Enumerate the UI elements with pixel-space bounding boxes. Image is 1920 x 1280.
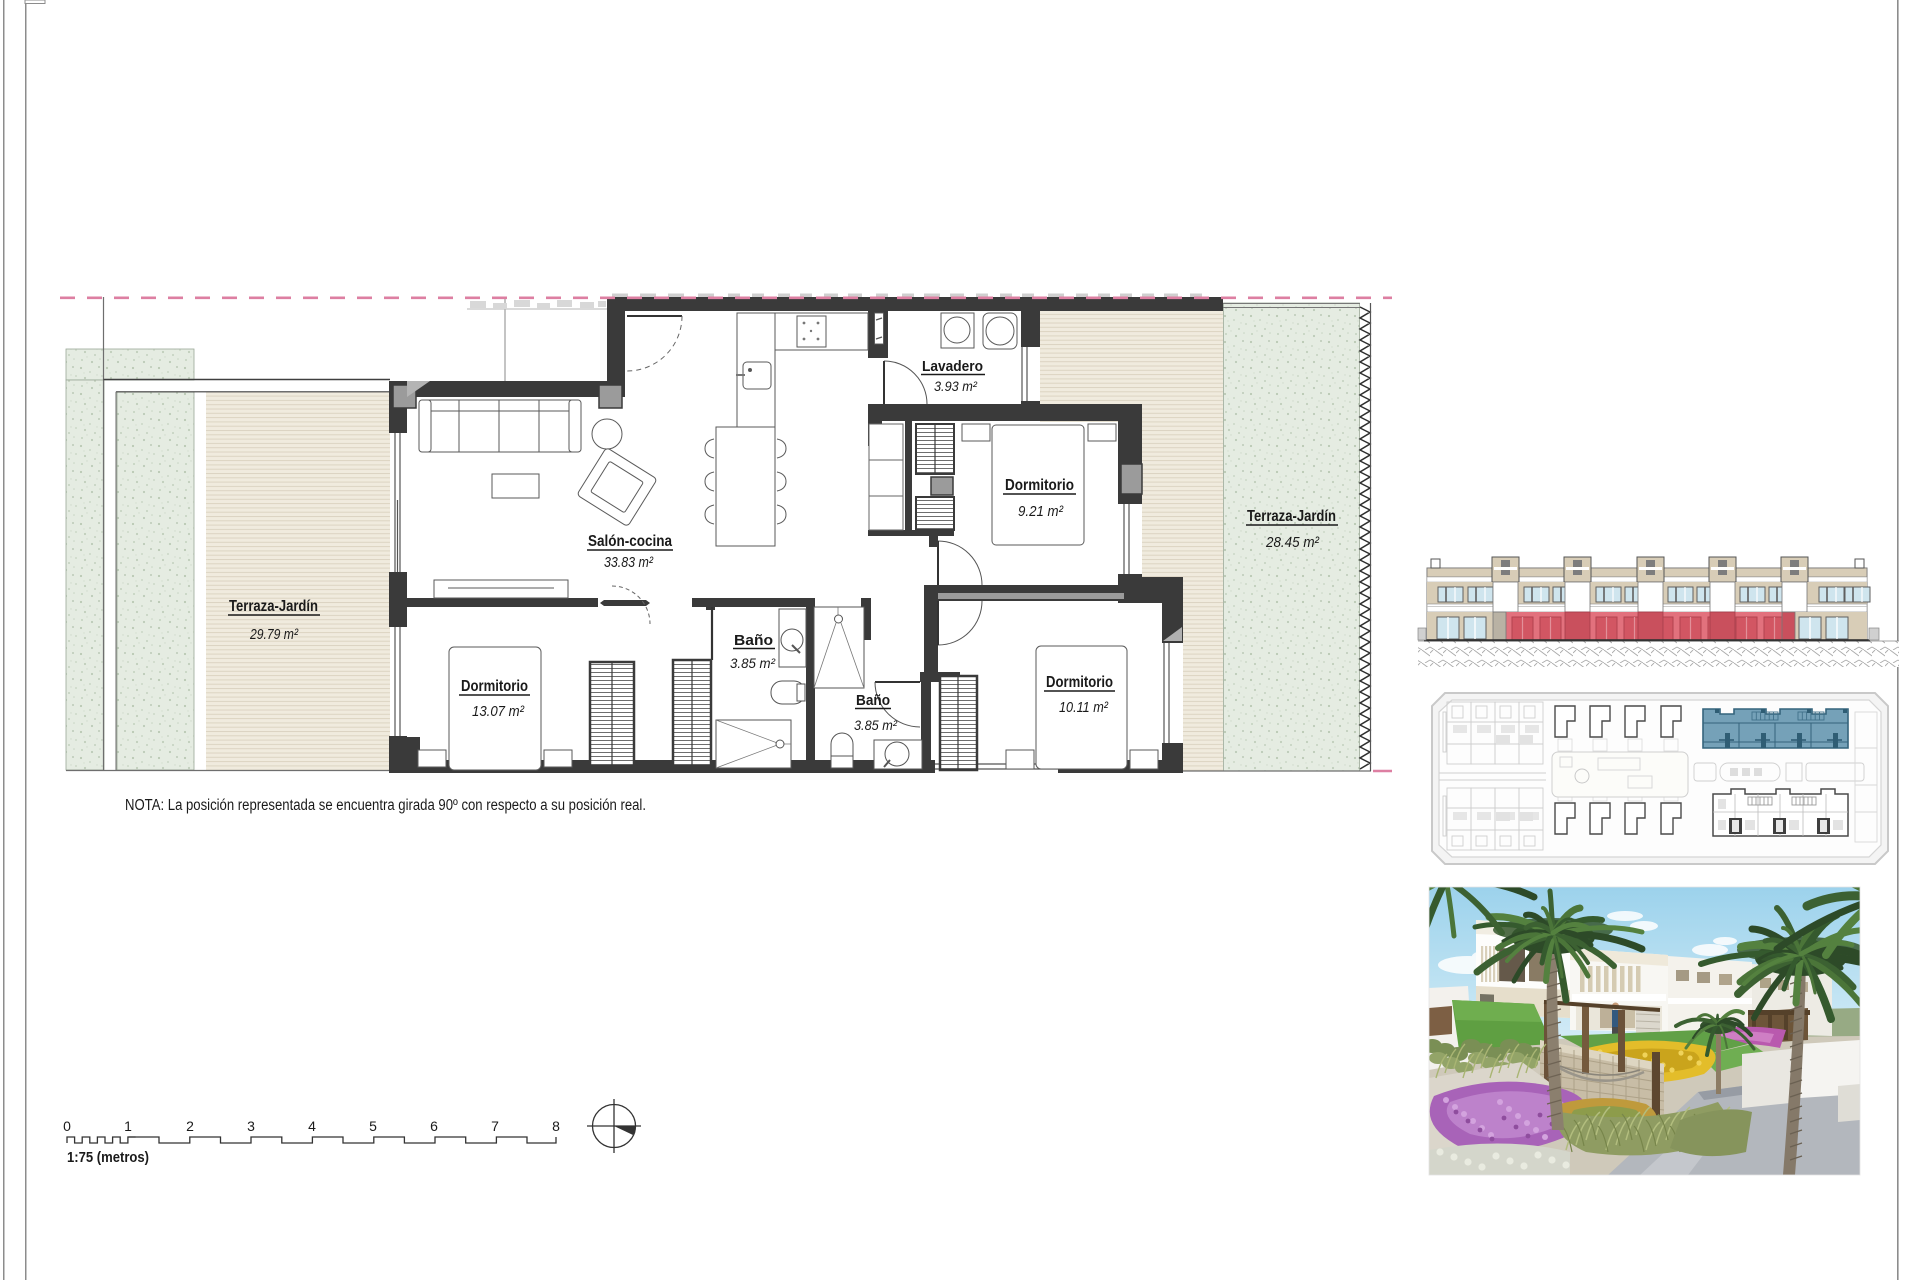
svg-text:8: 8 bbox=[552, 1118, 560, 1134]
svg-text:33.83 m²: 33.83 m² bbox=[604, 554, 654, 571]
svg-text:Dormitorio: Dormitorio bbox=[461, 678, 528, 695]
svg-text:3.85 m²: 3.85 m² bbox=[730, 655, 776, 671]
svg-text:0: 0 bbox=[63, 1118, 71, 1134]
svg-text:5: 5 bbox=[369, 1118, 377, 1134]
svg-text:Terraza-Jardín: Terraza-Jardín bbox=[229, 598, 318, 615]
svg-text:10.11 m²: 10.11 m² bbox=[1059, 699, 1109, 716]
svg-text:13.07 m²: 13.07 m² bbox=[472, 703, 525, 720]
svg-text:Baño: Baño bbox=[734, 632, 773, 649]
svg-text:6: 6 bbox=[430, 1118, 438, 1134]
svg-text:9.21 m²: 9.21 m² bbox=[1018, 503, 1064, 520]
svg-text:Lavadero: Lavadero bbox=[922, 358, 983, 375]
svg-text:NOTA: La posición representada: NOTA: La posición representada se encuen… bbox=[125, 797, 646, 814]
svg-text:Terraza-Jardín: Terraza-Jardín bbox=[1247, 508, 1336, 525]
svg-text:29.79 m²: 29.79 m² bbox=[249, 626, 299, 643]
svg-text:4: 4 bbox=[308, 1118, 316, 1134]
svg-text:1: 1 bbox=[124, 1118, 132, 1134]
svg-text:1:75 (metros): 1:75 (metros) bbox=[67, 1149, 149, 1166]
svg-text:Baño: Baño bbox=[856, 692, 890, 709]
svg-text:Dormitorio: Dormitorio bbox=[1046, 674, 1113, 691]
svg-text:2: 2 bbox=[186, 1118, 194, 1134]
svg-text:Dormitorio: Dormitorio bbox=[1005, 477, 1074, 494]
svg-text:7: 7 bbox=[491, 1118, 499, 1134]
svg-text:Salón-cocina: Salón-cocina bbox=[588, 533, 672, 550]
svg-text:3.93 m²: 3.93 m² bbox=[934, 378, 978, 394]
svg-text:3: 3 bbox=[247, 1118, 255, 1134]
svg-text:28.45 m²: 28.45 m² bbox=[1265, 534, 1320, 551]
svg-text:3.85 m²: 3.85 m² bbox=[854, 717, 898, 733]
